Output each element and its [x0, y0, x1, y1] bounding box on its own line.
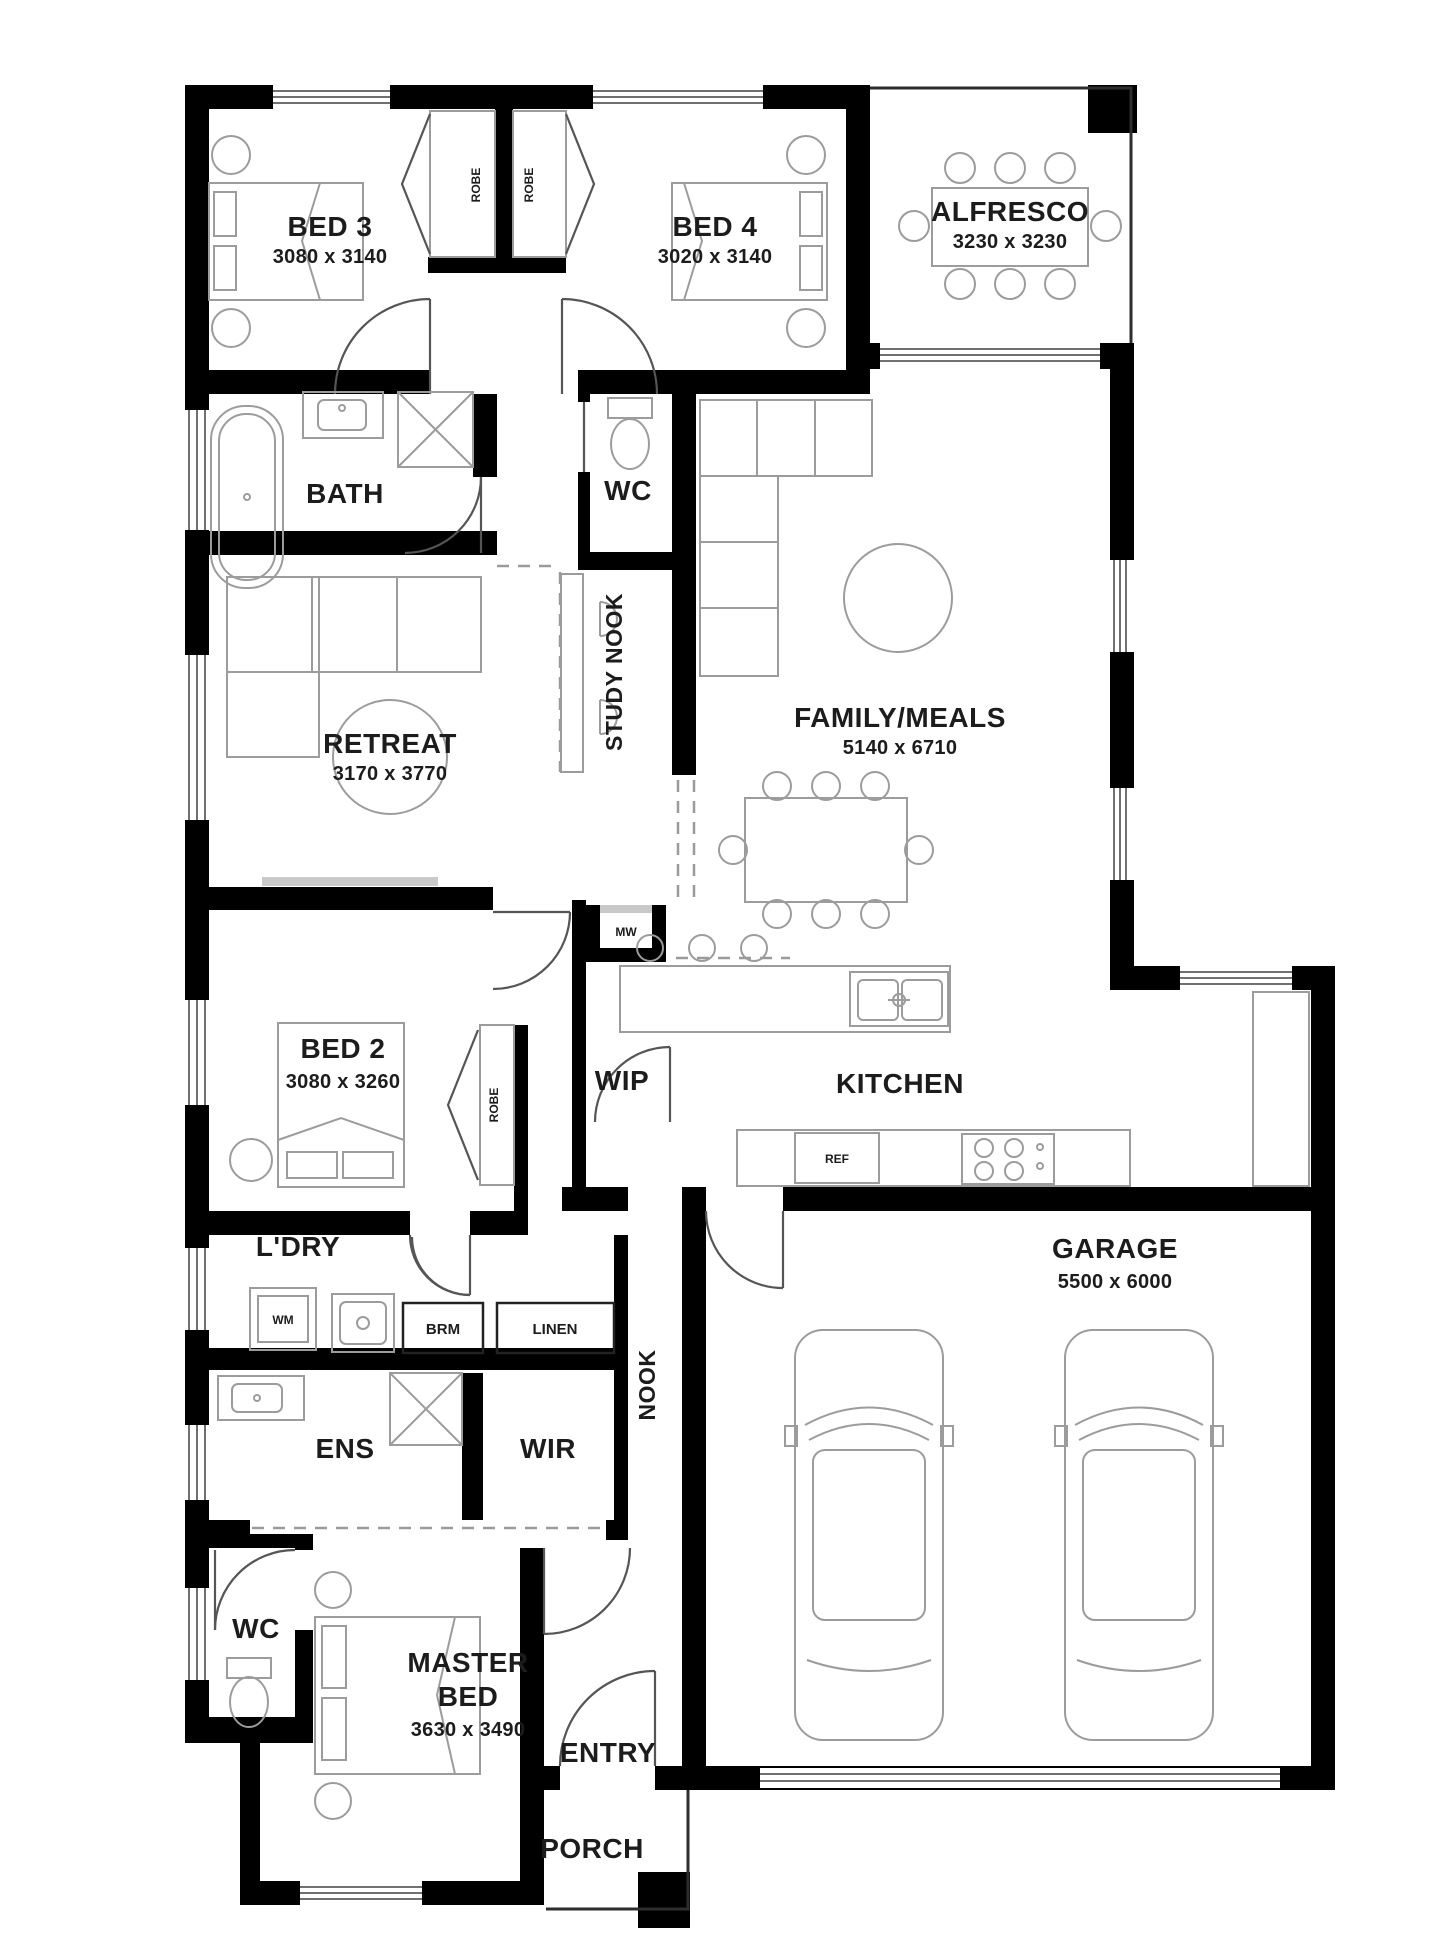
shower-icon — [398, 392, 473, 467]
vanity-icon — [303, 392, 383, 438]
room-label-family: FAMILY/MEALS — [794, 702, 1006, 733]
room-label-retreat: RETREAT — [323, 728, 457, 759]
room-label-bed3: BED 3 — [288, 211, 373, 242]
room-label-bath: BATH — [306, 478, 384, 509]
room-dims-alfresco: 3230 x 3230 — [953, 231, 1068, 253]
room-dims-master: 3630 x 3490 — [411, 1719, 526, 1741]
room-label-ens: ENS — [315, 1433, 374, 1464]
retreat-sill — [262, 877, 438, 886]
kitchen-side-bench-icon — [1253, 992, 1309, 1186]
window — [300, 1879, 422, 1907]
toilet-icon — [608, 398, 652, 469]
island-bench-icon — [620, 935, 950, 1032]
niche-opening — [600, 905, 652, 913]
robe-bifold-doors — [448, 1025, 514, 1185]
window — [183, 655, 211, 820]
car-icon — [1055, 1330, 1223, 1740]
room-label-wip: WIP — [595, 1065, 649, 1096]
room-label-master-line1: MASTER — [407, 1647, 528, 1678]
window — [593, 83, 763, 111]
hall-door — [412, 1237, 470, 1295]
window — [183, 410, 211, 530]
window — [1108, 560, 1136, 652]
sofa-icon — [700, 400, 872, 676]
label-wm: WM — [272, 1313, 293, 1327]
room-label-porch: PORCH — [540, 1833, 644, 1864]
window — [183, 1248, 211, 1330]
sliding-door-window — [880, 341, 1100, 369]
room-label-study-nook: STUDY NOOK — [601, 593, 627, 751]
label-niche: MW — [615, 925, 637, 939]
room-dims-bed2: 3080 x 3260 — [286, 1071, 401, 1093]
entry-hall-door — [544, 1548, 630, 1634]
room-label-nook: NOOK — [634, 1350, 660, 1421]
window — [273, 83, 390, 111]
window — [1108, 788, 1136, 880]
room-dims-family: 5140 x 6710 — [843, 737, 958, 759]
room-label-entry: ENTRY — [560, 1737, 656, 1768]
room-dims-bed3: 3080 x 3140 — [273, 246, 388, 268]
label-brm: BRM — [426, 1321, 460, 1338]
window — [1180, 964, 1292, 992]
room-label-master-line2: BED — [438, 1681, 499, 1712]
room-label-wc-lower: WC — [232, 1613, 280, 1644]
floor-plan-page: BED 3 3080 x 3140 BED 4 3020 x 3140 ALFR… — [0, 0, 1440, 1947]
room-label-alfresco: ALFRESCO — [931, 196, 1089, 227]
label-linen: LINEN — [533, 1321, 578, 1338]
toilet-icon — [227, 1658, 271, 1727]
room-label-wc-upper: WC — [604, 475, 652, 506]
laundry-trough-icon — [332, 1294, 394, 1352]
garage-internal-door — [706, 1211, 783, 1288]
label-robe-left: ROBE — [469, 168, 483, 203]
room-label-wir: WIR — [520, 1433, 576, 1464]
stool-icon — [741, 935, 767, 961]
car-icon — [785, 1330, 953, 1740]
label-robe-bed2: ROBE — [487, 1088, 501, 1123]
window — [183, 1000, 211, 1105]
bathtub-icon — [211, 406, 283, 588]
room-label-bed4: BED 4 — [673, 211, 758, 242]
label-robe-right: ROBE — [522, 168, 536, 203]
room-dims-garage: 5500 x 6000 — [1058, 1271, 1173, 1293]
room-dims-bed4: 3020 x 3140 — [658, 246, 773, 268]
room-label-kitchen: KITCHEN — [836, 1068, 964, 1099]
room-label-garage: GARAGE — [1052, 1233, 1178, 1264]
dining-table-icon — [719, 772, 933, 928]
rug-icon — [844, 544, 952, 652]
garage-panel-door — [760, 1768, 1280, 1788]
window — [183, 1588, 211, 1680]
window — [183, 1425, 211, 1500]
label-ref: REF — [825, 1152, 849, 1166]
vanity-icon — [218, 1376, 304, 1420]
room-dims-retreat: 3170 x 3770 — [333, 763, 448, 785]
shower-icon — [390, 1373, 462, 1445]
floor-plan-canvas: BED 3 3080 x 3140 BED 4 3020 x 3140 ALFR… — [0, 0, 1440, 1947]
hall-bed2-door — [493, 912, 570, 989]
room-label-bed2: BED 2 — [301, 1033, 386, 1064]
room-label-ldry: L'DRY — [256, 1231, 340, 1262]
